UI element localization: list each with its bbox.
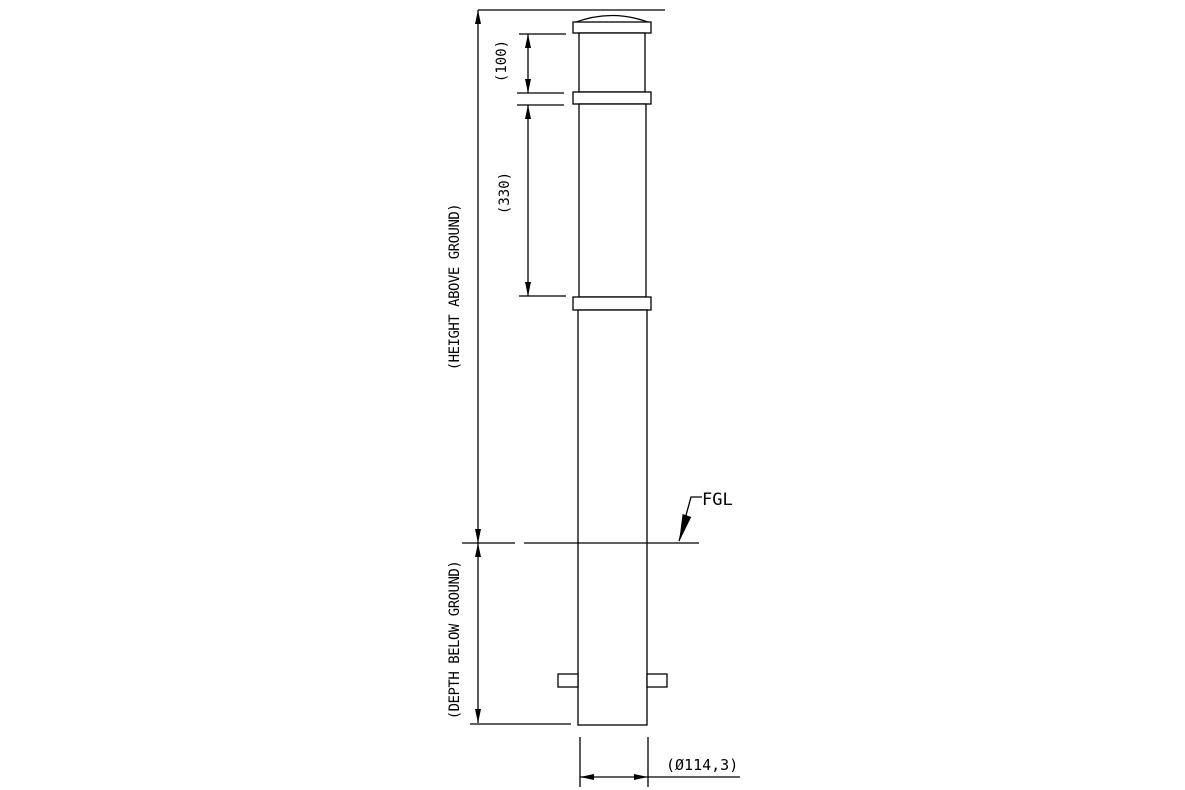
fgl-arrowhead-icon <box>679 514 691 542</box>
arrowhead-left-icon <box>580 774 594 780</box>
anchor-lug-right <box>647 674 667 687</box>
arrowhead-down-icon <box>475 709 481 723</box>
diameter-dimension-label: (Ø114,3) <box>666 756 738 774</box>
bollard-band-upper <box>573 92 651 104</box>
dimension-cap-100: (100) <box>494 34 566 93</box>
bollard-cap-collar <box>573 22 651 33</box>
depth-below-ground-label: (DEPTH BELOW GROUND) <box>447 561 463 720</box>
arrowhead-up-icon <box>475 543 481 557</box>
arrowhead-down-icon <box>475 529 481 543</box>
band-spacing-dimension-label: (330) <box>497 172 513 214</box>
height-above-ground-label: (HEIGHT ABOVE GROUND) <box>447 204 463 371</box>
arrowhead-down-icon <box>525 282 531 296</box>
anchor-lug-left <box>558 674 578 687</box>
arrowhead-right-icon <box>634 774 648 780</box>
cap-dimension-label: (100) <box>494 40 510 82</box>
bollard-technical-drawing: (HEIGHT ABOVE GROUND) (DEPTH BELOW GROUN… <box>0 0 1185 790</box>
bollard-shaft-middle <box>579 104 646 297</box>
dimension-depth-below-ground: (DEPTH BELOW GROUND) <box>447 543 571 724</box>
arrowhead-down-icon <box>525 79 531 93</box>
drawing-sheet: (HEIGHT ABOVE GROUND) (DEPTH BELOW GROUN… <box>0 0 1185 790</box>
arrowhead-up-icon <box>525 105 531 119</box>
dimension-band-spacing-330: (330) <box>497 105 566 296</box>
arrowhead-up-icon <box>475 10 481 24</box>
bollard-shaft-buried <box>578 310 647 725</box>
arrowhead-up-icon <box>525 34 531 48</box>
bollard-band-lower <box>573 297 651 310</box>
fgl-label: FGL <box>702 490 733 510</box>
bollard-body <box>558 16 667 726</box>
fgl-callout: FGL <box>679 490 733 542</box>
bollard-shaft-upper <box>579 33 645 92</box>
dimension-diameter: (Ø114,3) <box>580 737 740 787</box>
